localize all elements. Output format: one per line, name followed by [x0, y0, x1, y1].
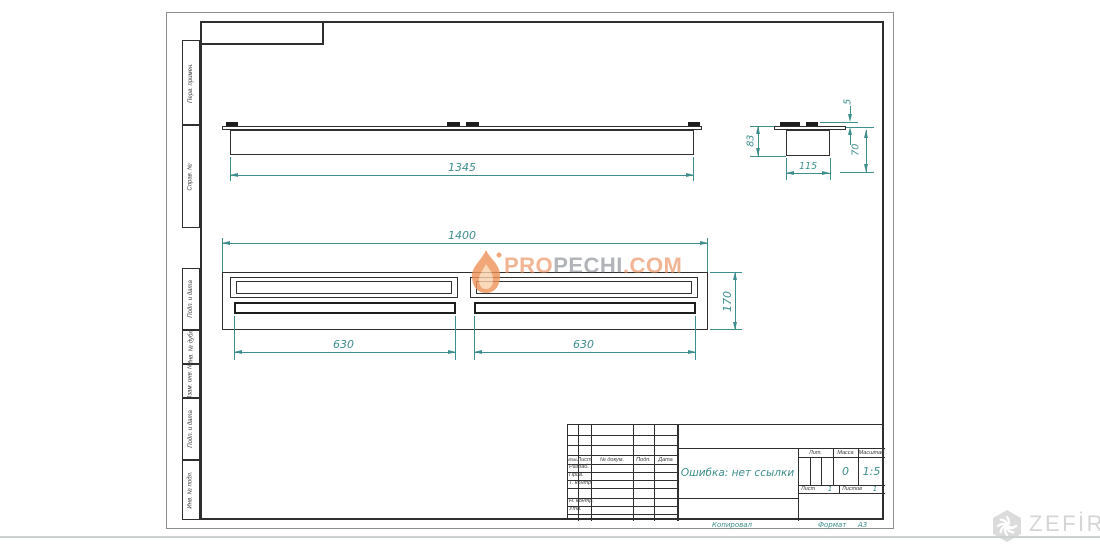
tb-col-docnum: № докум.: [591, 455, 633, 464]
dim-arrow: [756, 148, 760, 156]
format-label: Формат: [818, 522, 846, 529]
dim-arrow: [686, 173, 694, 177]
dim-arrow: [786, 171, 794, 175]
watermark-com: .COM: [623, 253, 682, 278]
dim-arrow: [848, 114, 852, 122]
zefire-brand-text: ZEFİRE: [1029, 513, 1100, 535]
ext-line: [710, 329, 742, 330]
dim-line: [234, 352, 456, 353]
ext-line: [750, 156, 786, 157]
dim-slot-right: 630: [573, 339, 594, 350]
side-tab: [806, 122, 818, 126]
viewport-bottom-rule: [0, 536, 1100, 538]
dim-plan-depth: 170: [722, 291, 733, 312]
ext-line: [830, 158, 831, 180]
front-tab: [466, 122, 479, 126]
ext-line: [230, 157, 231, 181]
dim-arrow: [864, 130, 868, 138]
ext-line: [693, 157, 694, 181]
tb-mass-value: 0: [833, 457, 858, 485]
dim-arrow: [822, 171, 830, 175]
tb-sheets-label: Листов: [842, 487, 862, 493]
tb-row-prov: Пров.: [569, 473, 584, 479]
dim-arrow: [230, 173, 238, 177]
tb-row-tkontr: Т. контр.: [569, 481, 593, 487]
title-block: Изм. Лист № докум. Подп. Дата Разраб. Пр…: [567, 424, 884, 520]
margin-label: Справ. №: [188, 163, 194, 190]
tb-designation: Ошибка: нет ссылки: [677, 448, 798, 498]
plan-frame-left-inner: [236, 281, 452, 294]
front-tab: [226, 122, 238, 126]
tb-sheet-label: Лист: [801, 487, 815, 493]
flame-icon: [466, 248, 506, 296]
side-tab: [780, 122, 800, 126]
tb-sheets-value: 1: [868, 485, 882, 493]
dim-line: [222, 243, 708, 244]
tb-scale-label: Масштаб: [858, 448, 885, 457]
margin-box-sprav-no: Справ. №: [182, 125, 200, 228]
tb-col-list: Лист: [578, 455, 591, 464]
front-tab: [447, 122, 460, 126]
margin-label: Перв. примен.: [188, 63, 194, 103]
tb-col-data: Дата: [654, 455, 677, 464]
plan-frame-right-inner: [476, 281, 692, 294]
dim-line: [474, 352, 696, 353]
tb-row-razrab: Разраб.: [569, 465, 589, 471]
ext-line: [710, 272, 742, 273]
margin-box-inv-podl: Инв. № подл.: [182, 460, 200, 520]
dim-plan-length: 1400: [448, 230, 476, 241]
dim-arrow: [756, 126, 760, 134]
tb-sheet-value: 1: [823, 485, 837, 493]
dim-side-height: 83: [746, 135, 756, 147]
dim-arrow: [848, 127, 852, 135]
dim-arrow: [222, 241, 230, 245]
front-body: [230, 130, 694, 155]
margin-label: Инв. № дубл.: [188, 329, 194, 366]
margin-label: Инв. № подл.: [188, 471, 194, 508]
front-tab: [688, 122, 700, 126]
dim-arrow: [474, 350, 482, 354]
ext-line: [786, 158, 787, 180]
side-body: [786, 130, 830, 156]
margin-box-podp-data-1: Подп. и дата: [182, 268, 200, 330]
dim-arrow: [234, 350, 242, 354]
tb-lit-label: Лит.: [798, 448, 833, 457]
ext-line: [750, 126, 774, 127]
dim-arrow: [864, 164, 868, 172]
format-value: А3: [858, 522, 867, 529]
margin-label: Взам. инв. №: [188, 362, 194, 399]
margin-label: Подп. и дата: [188, 410, 194, 448]
plan-slot-right: [474, 302, 696, 314]
dim-side-top: 5: [843, 99, 853, 105]
watermark-text: PROPECHI.COM: [504, 255, 682, 277]
tb-scale-value: 1:5: [858, 457, 885, 485]
margin-box-podp-data-2: Подп. и дата: [182, 398, 200, 460]
tb-row-utv: Утв.: [569, 507, 582, 513]
watermark-pechi: PECHI: [553, 253, 623, 278]
dim-arrow: [733, 322, 737, 330]
plan-slot-left: [234, 302, 456, 314]
dim-arrow: [448, 350, 456, 354]
drawing-canvas: Перв. примен. Справ. № Подп. и дата Инв.…: [0, 0, 1100, 544]
margin-box-vzam-inv: Взам. инв. №: [182, 364, 200, 398]
margin-box-perv-primen: Перв. примен.: [182, 40, 200, 125]
dim-front-length: 1345: [448, 162, 476, 173]
dim-side-width: 115: [799, 162, 817, 172]
dim-arrow: [733, 272, 737, 280]
ext-line: [820, 122, 858, 123]
ext-line: [840, 172, 874, 173]
watermark-pro: PRO: [504, 253, 553, 278]
margin-label: Подп. и дата: [188, 280, 194, 318]
dim-arrow: [688, 350, 696, 354]
copied-label: Копировал: [712, 522, 752, 529]
dim-arrow: [700, 241, 708, 245]
tb-mass-label: Масса: [833, 448, 858, 457]
margin-box-inv-dubl: Инв. № дубл.: [182, 330, 200, 364]
dim-side-lower: 70: [851, 144, 861, 156]
dim-slot-left: 630: [333, 339, 354, 350]
tb-row-nkontr: Н. контр.: [569, 499, 594, 505]
dim-line: [230, 175, 694, 176]
top-stamp-box: [200, 21, 324, 45]
tb-col-podp: Подп.: [633, 455, 654, 464]
